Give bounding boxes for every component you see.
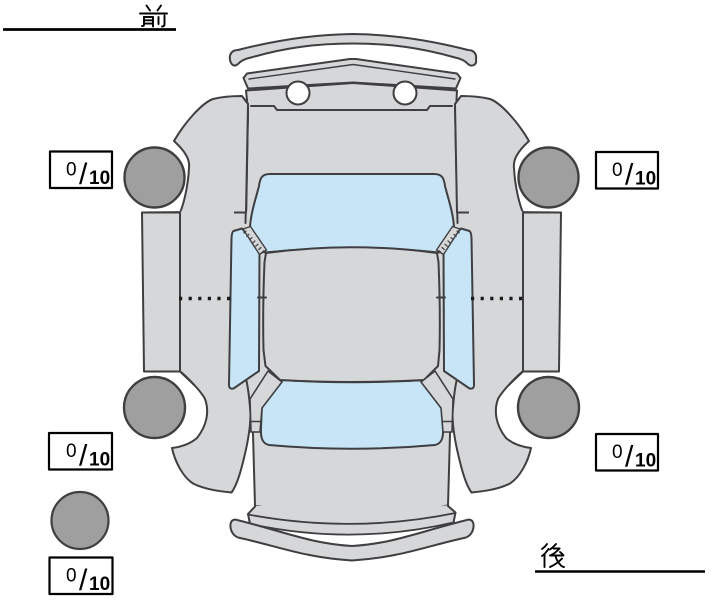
svg-text:/: / <box>79 564 88 597</box>
svg-text:/: / <box>79 158 88 191</box>
svg-text:0: 0 <box>66 441 77 462</box>
svg-text:10: 10 <box>635 169 656 190</box>
svg-text:10: 10 <box>635 451 656 472</box>
svg-text:0: 0 <box>66 160 77 181</box>
svg-text:10: 10 <box>89 168 110 189</box>
svg-text:/: / <box>79 440 88 473</box>
svg-text:10: 10 <box>89 574 110 595</box>
svg-text:/: / <box>625 159 634 192</box>
svg-text:10: 10 <box>89 450 110 471</box>
svg-text:0: 0 <box>66 566 77 587</box>
svg-text:0: 0 <box>612 160 623 181</box>
svg-text:0: 0 <box>612 442 623 463</box>
svg-text:/: / <box>625 441 634 474</box>
